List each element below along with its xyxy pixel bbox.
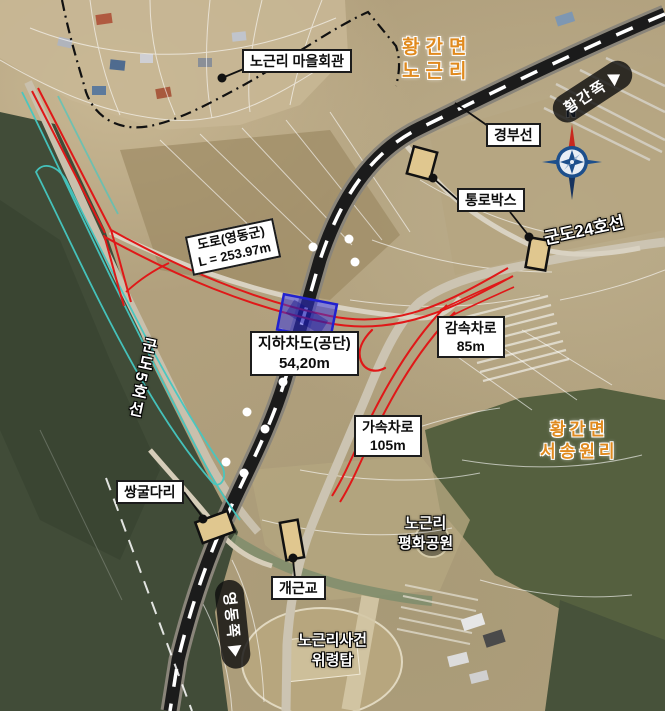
peace-park-label: 노근리 평화공원	[398, 514, 453, 553]
gaegeun-bridge-label: 개근교	[271, 576, 326, 600]
accel-lane-label: 가속차로 105m	[354, 415, 422, 457]
region-label-seosongwonri: 황간면 서송원리	[540, 419, 619, 463]
underpass-line1: 지하차도(공단)	[258, 334, 351, 354]
direction-arrow-icon	[228, 645, 243, 657]
passage-box-label: 통로박스	[457, 188, 525, 212]
gyeongbu-line-label: 경부선	[486, 123, 541, 147]
memorial-label: 노근리사건 위령탑	[298, 631, 367, 672]
decel-lane-line2: 85m	[445, 337, 497, 355]
twin-tunnel-label: 쌍굴다리	[116, 480, 184, 504]
field-center	[120, 130, 400, 300]
direction-arrow-icon	[607, 68, 624, 86]
decel-lane-label: 감속차로 85m	[437, 316, 505, 358]
region-label-nogeunri: 황간면 노근리	[402, 36, 472, 84]
accel-lane-line1: 가속차로	[362, 418, 414, 436]
underpass-line2: 54,20m	[258, 354, 351, 374]
underpass-label: 지하차도(공단) 54,20m	[250, 331, 359, 376]
map-canvas: N 노근리 마을회관 경부선 통로박스 군도24호선 도로(영동군) L = 2…	[0, 0, 665, 711]
village-hall-label: 노근리 마을회관	[242, 49, 352, 73]
accel-lane-line2: 105m	[362, 436, 414, 454]
decel-lane-line1: 감속차로	[445, 319, 497, 337]
